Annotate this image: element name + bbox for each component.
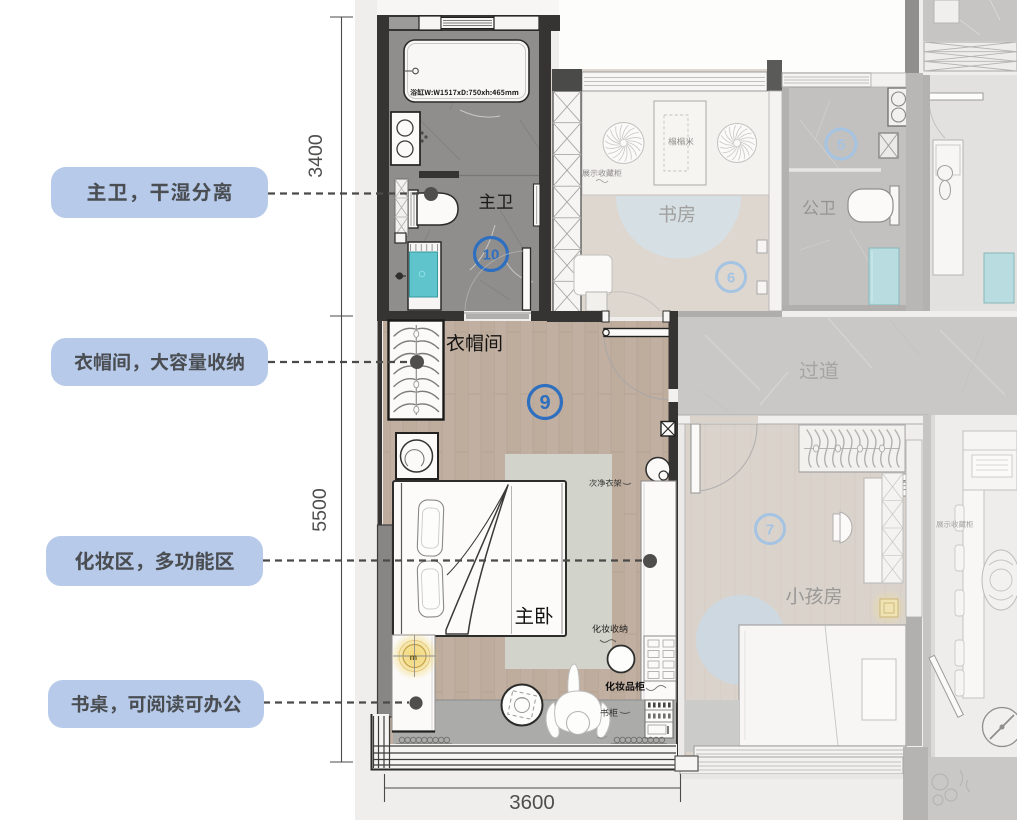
svg-text:5500: 5500 [309,488,331,532]
svg-text:3400: 3400 [305,134,327,178]
svg-text:6: 6 [727,269,735,286]
svg-text:5: 5 [837,136,845,153]
svg-text:3600: 3600 [509,791,555,814]
svg-text:9: 9 [539,392,550,414]
svg-text:10: 10 [483,246,500,263]
svg-text:7: 7 [766,521,774,538]
